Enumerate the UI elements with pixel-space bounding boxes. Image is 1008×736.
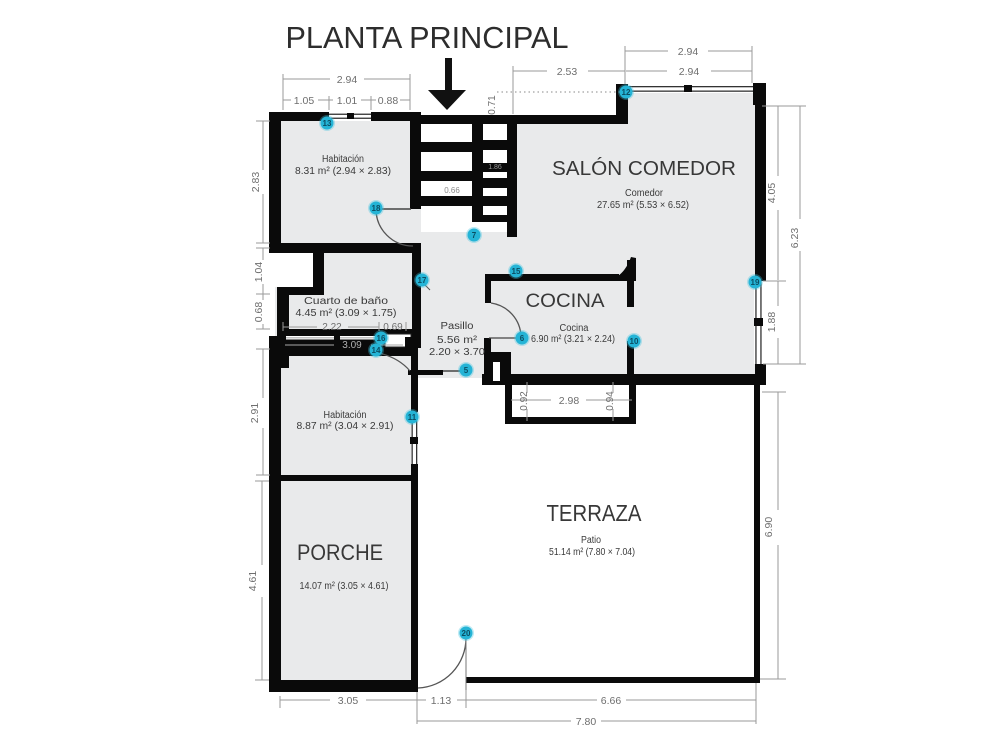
svg-text:1.88: 1.88 bbox=[766, 312, 778, 333]
svg-text:0.92: 0.92 bbox=[519, 391, 530, 411]
svg-text:2.94: 2.94 bbox=[337, 74, 358, 86]
svg-text:Comedor: Comedor bbox=[625, 188, 664, 199]
svg-text:2.98: 2.98 bbox=[559, 395, 580, 407]
svg-text:4.45 m² (3.09 × 1.75): 4.45 m² (3.09 × 1.75) bbox=[296, 308, 397, 319]
svg-text:18: 18 bbox=[372, 204, 381, 213]
svg-text:1.04: 1.04 bbox=[253, 262, 265, 283]
svg-text:6.90 m² (3.21 × 2.24): 6.90 m² (3.21 × 2.24) bbox=[531, 334, 615, 345]
svg-text:PORCHE: PORCHE bbox=[297, 540, 383, 565]
svg-text:6.66: 6.66 bbox=[601, 695, 622, 707]
svg-text:8.87 m² (3.04 × 2.91): 8.87 m² (3.04 × 2.91) bbox=[297, 421, 394, 432]
svg-text:27.65 m² (5.53 × 6.52): 27.65 m² (5.53 × 6.52) bbox=[597, 200, 689, 211]
svg-text:1.01: 1.01 bbox=[337, 95, 358, 107]
svg-text:0.66: 0.66 bbox=[444, 186, 460, 195]
svg-text:Patio: Patio bbox=[581, 535, 601, 546]
svg-text:4.61: 4.61 bbox=[247, 571, 259, 592]
svg-text:2.83: 2.83 bbox=[250, 172, 262, 193]
svg-text:14.07 m² (3.05 × 4.61): 14.07 m² (3.05 × 4.61) bbox=[300, 581, 389, 592]
svg-text:3.09: 3.09 bbox=[342, 340, 362, 351]
svg-text:16: 16 bbox=[377, 334, 386, 343]
svg-text:0.94: 0.94 bbox=[605, 391, 616, 411]
svg-text:6.90: 6.90 bbox=[763, 517, 775, 538]
svg-text:PLANTA PRINCIPAL: PLANTA PRINCIPAL bbox=[286, 20, 569, 55]
svg-text:Cocina: Cocina bbox=[560, 323, 589, 334]
svg-text:12: 12 bbox=[622, 88, 631, 97]
svg-text:2.22: 2.22 bbox=[322, 322, 342, 333]
svg-text:5.56 m²: 5.56 m² bbox=[437, 335, 478, 346]
svg-text:Habitación: Habitación bbox=[322, 154, 364, 165]
svg-text:2.53: 2.53 bbox=[557, 66, 578, 78]
svg-text:7: 7 bbox=[472, 231, 477, 240]
svg-text:0.88: 0.88 bbox=[378, 95, 399, 107]
svg-text:0.68: 0.68 bbox=[253, 302, 265, 323]
svg-text:3.05: 3.05 bbox=[338, 695, 359, 707]
svg-text:0.71: 0.71 bbox=[487, 95, 498, 115]
svg-text:1.13: 1.13 bbox=[431, 695, 452, 707]
svg-text:5: 5 bbox=[464, 366, 469, 375]
svg-text:0.69: 0.69 bbox=[383, 322, 403, 333]
svg-text:6: 6 bbox=[520, 334, 525, 343]
svg-text:TERRAZA: TERRAZA bbox=[547, 500, 643, 526]
svg-text:8.31 m² (2.94 × 2.83): 8.31 m² (2.94 × 2.83) bbox=[295, 166, 391, 177]
svg-text:7.80: 7.80 bbox=[576, 716, 597, 728]
svg-text:19: 19 bbox=[751, 278, 760, 287]
svg-text:COCINA: COCINA bbox=[526, 290, 605, 312]
svg-text:20: 20 bbox=[462, 629, 471, 638]
svg-text:51.14 m² (7.80 × 7.04): 51.14 m² (7.80 × 7.04) bbox=[549, 547, 635, 558]
svg-text:2.94: 2.94 bbox=[679, 66, 700, 78]
svg-text:14: 14 bbox=[372, 346, 381, 355]
svg-text:2.20 × 3.70: 2.20 × 3.70 bbox=[429, 347, 485, 358]
svg-text:1.86: 1.86 bbox=[488, 164, 502, 171]
svg-text:Cuarto de baño: Cuarto de baño bbox=[304, 296, 389, 307]
svg-text:2.94: 2.94 bbox=[678, 46, 699, 58]
svg-text:6.23: 6.23 bbox=[789, 228, 801, 249]
svg-text:Habitación: Habitación bbox=[324, 410, 367, 421]
svg-text:17: 17 bbox=[418, 276, 427, 285]
svg-text:13: 13 bbox=[323, 119, 332, 128]
svg-text:1.05: 1.05 bbox=[294, 95, 315, 107]
svg-text:10: 10 bbox=[630, 337, 639, 346]
svg-text:4.05: 4.05 bbox=[766, 183, 778, 204]
svg-text:2.91: 2.91 bbox=[249, 403, 261, 424]
svg-text:11: 11 bbox=[408, 413, 417, 422]
svg-text:Pasillo: Pasillo bbox=[441, 321, 474, 332]
svg-text:SALÓN COMEDOR: SALÓN COMEDOR bbox=[552, 157, 736, 180]
svg-text:15: 15 bbox=[512, 267, 521, 276]
